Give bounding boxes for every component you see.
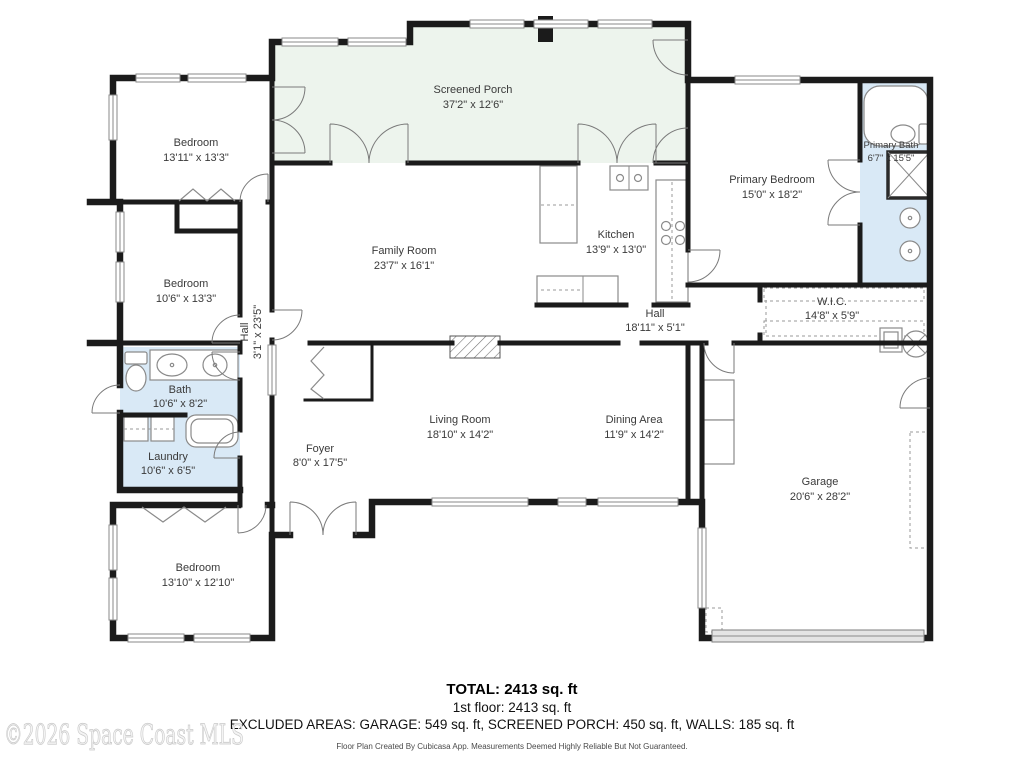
svg-text:15'0" x 18'2": 15'0" x 18'2" xyxy=(742,189,802,201)
bath-sink-left xyxy=(157,354,187,376)
svg-text:Laundry: Laundry xyxy=(148,451,188,463)
primary-bath-double-door xyxy=(828,160,860,225)
window xyxy=(534,20,588,28)
window xyxy=(109,578,117,620)
svg-text:13'10" x 12'10": 13'10" x 12'10" xyxy=(162,577,235,589)
family-room-hall-door xyxy=(272,310,302,340)
svg-text:14'8" x 5'9": 14'8" x 5'9" xyxy=(805,310,859,322)
svg-text:6'7" x 15'5": 6'7" x 15'5" xyxy=(868,153,915,164)
fireplace xyxy=(450,336,500,358)
closet-bifold-bedroom-bottom xyxy=(142,507,226,522)
primary-toilet-tank xyxy=(919,124,928,144)
garage-shelf-2 xyxy=(704,420,734,464)
svg-text:Hall: Hall xyxy=(239,323,251,342)
svg-text:37'2" x 12'6": 37'2" x 12'6" xyxy=(443,99,503,111)
bedroom-bottom-door xyxy=(238,505,266,533)
window xyxy=(268,345,276,395)
room-label-hall-vertical: Hall 3'1" x 23'5" xyxy=(239,305,264,359)
svg-text:Bedroom: Bedroom xyxy=(164,278,209,290)
svg-text:W.I.C.: W.I.C. xyxy=(817,296,847,308)
primary-sink-1 xyxy=(900,208,920,228)
svg-text:Screened Porch: Screened Porch xyxy=(434,84,513,96)
footer: TOTAL: 2413 sq. ft 1st floor: 2413 sq. f… xyxy=(4,681,794,751)
fixtures xyxy=(124,86,930,632)
window xyxy=(194,634,250,642)
window xyxy=(128,634,184,642)
room-label-bedroom-left: Bedroom 10'6" x 13'3" xyxy=(156,278,216,305)
primary-sink-2 xyxy=(900,241,920,261)
room-label-garage: Garage 20'6" x 28'2" xyxy=(790,476,850,503)
room-label-wic: W.I.C. 14'8" x 5'9" xyxy=(805,296,859,322)
svg-text:Foyer: Foyer xyxy=(306,443,334,455)
svg-text:Garage: Garage xyxy=(802,476,839,488)
room-label-kitchen: Kitchen 13'9" x 13'0" xyxy=(586,229,646,256)
room-label-dining-area: Dining Area 11'9" x 14'2" xyxy=(604,414,664,441)
window xyxy=(558,498,586,506)
kitchen-counter-right xyxy=(656,180,688,302)
window xyxy=(432,498,528,506)
svg-text:18'10" x 14'2": 18'10" x 14'2" xyxy=(427,429,494,441)
toilet-tank xyxy=(125,352,147,364)
bedroom-top-left-door xyxy=(240,174,268,202)
floor-plan-canvas: Screened Porch 37'2" x 12'6" Bedroom 13'… xyxy=(0,0,1024,768)
svg-text:10'6" x 6'5": 10'6" x 6'5" xyxy=(141,465,195,477)
window xyxy=(282,38,338,46)
window xyxy=(698,528,706,608)
garage-entry-door xyxy=(704,343,734,373)
garage-shelf-1 xyxy=(704,380,734,420)
total-area-text: TOTAL: 2413 sq. ft xyxy=(446,681,577,698)
window xyxy=(470,20,524,28)
svg-text:Hall: Hall xyxy=(646,308,665,320)
disclaimer-text: Floor Plan Created By Cubicasa App. Meas… xyxy=(336,742,687,751)
closet-bifold-foyer xyxy=(311,347,324,399)
room-label-living-room: Living Room 18'10" x 14'2" xyxy=(427,414,494,441)
svg-text:Primary Bath: Primary Bath xyxy=(864,140,919,151)
svg-text:13'9" x 13'0": 13'9" x 13'0" xyxy=(586,244,646,256)
bedroom-left-door xyxy=(212,315,240,343)
bathtub xyxy=(186,415,238,447)
closet-bifold-bedroom-top xyxy=(179,189,235,201)
svg-text:Bedroom: Bedroom xyxy=(174,137,219,149)
excluded-areas-text: EXCLUDED AREAS: GARAGE: 549 sq. ft, SCRE… xyxy=(230,717,795,732)
primary-bedroom-door xyxy=(688,250,720,282)
svg-text:10'6" x 8'2": 10'6" x 8'2" xyxy=(153,398,207,410)
window xyxy=(598,498,678,506)
svg-text:3'1" x 23'5": 3'1" x 23'5" xyxy=(252,305,264,359)
room-label-hall: Hall 18'11" x 5'1" xyxy=(625,308,685,334)
window xyxy=(188,74,246,82)
room-label-bedroom-top-left: Bedroom 13'11" x 13'3" xyxy=(163,137,229,164)
svg-text:23'7" x 16'1": 23'7" x 16'1" xyxy=(374,260,434,272)
svg-text:10'6" x 13'3": 10'6" x 13'3" xyxy=(156,293,216,305)
room-label-foyer: Foyer 8'0" x 17'5" xyxy=(293,443,347,469)
svg-text:8'0" x 17'5": 8'0" x 17'5" xyxy=(293,457,347,469)
svg-text:Bath: Bath xyxy=(169,384,192,396)
svg-text:Family Room: Family Room xyxy=(372,245,437,257)
bath-exterior-door xyxy=(92,385,120,413)
room-label-family-room: Family Room 23'7" x 16'1" xyxy=(372,245,437,272)
svg-text:Primary Bedroom: Primary Bedroom xyxy=(729,174,815,186)
floor-plan-page: Screened Porch 37'2" x 12'6" Bedroom 13'… xyxy=(0,0,1024,768)
toilet-bowl xyxy=(126,365,146,391)
window xyxy=(598,20,652,28)
window xyxy=(348,38,406,46)
window xyxy=(735,76,800,84)
svg-text:20'6" x 28'2": 20'6" x 28'2" xyxy=(790,491,850,503)
svg-text:Living Room: Living Room xyxy=(429,414,490,426)
window xyxy=(136,74,180,82)
mls-watermark: ©2026 Space Coast MLS xyxy=(4,718,244,751)
window xyxy=(116,262,124,302)
svg-text:13'11" x 13'3": 13'11" x 13'3" xyxy=(163,152,229,164)
garage-side-door xyxy=(900,378,930,408)
svg-text:Dining Area: Dining Area xyxy=(606,414,664,426)
room-label-primary-bedroom: Primary Bedroom 15'0" x 18'2" xyxy=(729,174,815,201)
entry-double-door xyxy=(290,502,356,535)
window xyxy=(109,95,117,140)
window xyxy=(116,212,124,252)
svg-text:Bedroom: Bedroom xyxy=(176,562,221,574)
room-label-bedroom-bottom: Bedroom 13'10" x 12'10" xyxy=(162,562,235,589)
first-floor-text: 1st floor: 2413 sq. ft xyxy=(453,700,572,715)
svg-text:18'11" x 5'1": 18'11" x 5'1" xyxy=(625,322,685,334)
garage-door xyxy=(712,630,924,642)
window xyxy=(109,525,117,570)
svg-text:11'9" x 14'2": 11'9" x 14'2" xyxy=(604,429,664,441)
svg-text:Kitchen: Kitchen xyxy=(598,229,635,241)
